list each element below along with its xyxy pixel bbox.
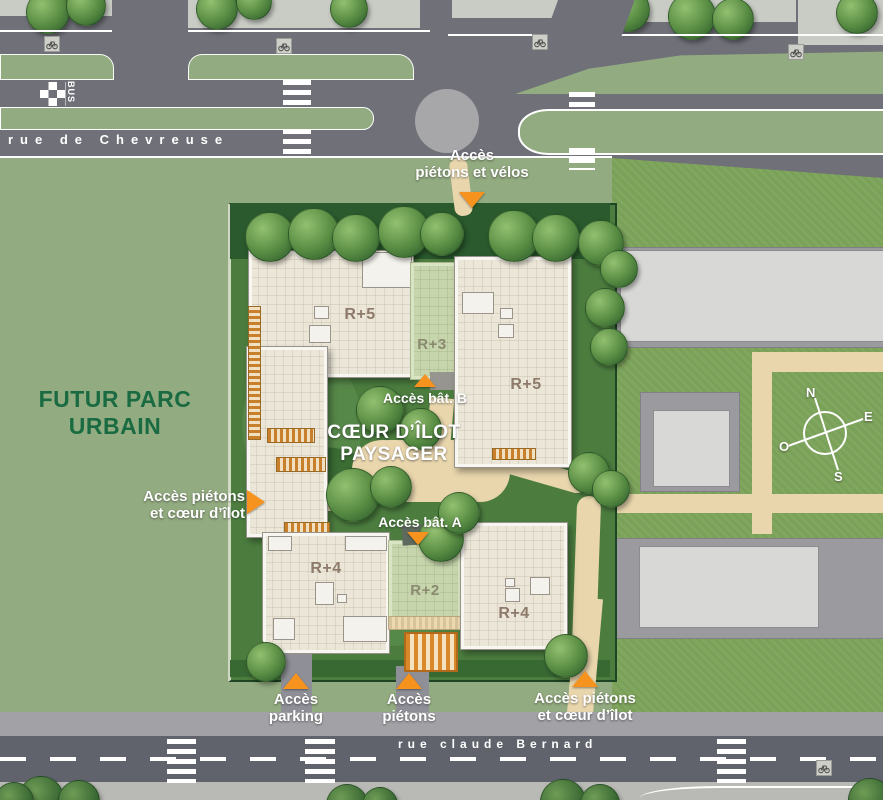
access-bat-a-label: Accès bât. A (340, 514, 500, 530)
access-parking-arrow-icon (283, 673, 309, 689)
access-top-arrow-icon (459, 192, 485, 208)
bike-glyph (790, 46, 802, 58)
access-bat-a-arrow-icon (407, 532, 429, 545)
access-bottom-right-label: Accès piétons et cœur d’îlot (510, 690, 660, 725)
bike-lane-icon (44, 36, 60, 52)
access-pietons-arrow-icon (396, 673, 422, 689)
access-bottom-right-line1: Accès piétons (534, 690, 636, 707)
bike-lane-icon (816, 760, 832, 776)
access-left-label: Accès piétons et cœur d’îlot (95, 488, 245, 523)
access-bottom-right-arrow-icon (572, 671, 598, 687)
access-bat-b-label: Accès bât. B (345, 390, 505, 406)
access-left-line2: et cœur d’îlot (150, 505, 245, 522)
access-left-arrow-icon (247, 490, 265, 514)
bike-lane-icon (276, 38, 292, 54)
access-top-line1: Accès (450, 147, 494, 164)
bike-lane-icon (788, 44, 804, 60)
access-bat-b-arrow-icon (414, 374, 436, 387)
access-top-line2: piétons et vélos (415, 164, 528, 181)
bike-glyph (46, 38, 58, 50)
access-pietons-line1: Accès (387, 691, 431, 708)
access-parking-line1: Accès (274, 691, 318, 708)
bike-glyph (278, 40, 290, 52)
access-top-label: Accès piétons et vélos (372, 147, 572, 182)
access-left-line1: Accès piétons (143, 488, 245, 505)
access-parking-line2: parking (269, 708, 323, 725)
access-bottom-right-line2: et cœur d’îlot (538, 707, 633, 724)
access-pietons-label: Accès piétons (334, 691, 484, 726)
access-pietons-line2: piétons (382, 708, 435, 725)
site-plan-map: BUS rue de Chevreuse FUTUR PARC URBAIN N… (0, 0, 883, 800)
bike-lane-icon (532, 34, 548, 50)
bike-glyph (534, 36, 546, 48)
bike-glyph (818, 762, 830, 774)
